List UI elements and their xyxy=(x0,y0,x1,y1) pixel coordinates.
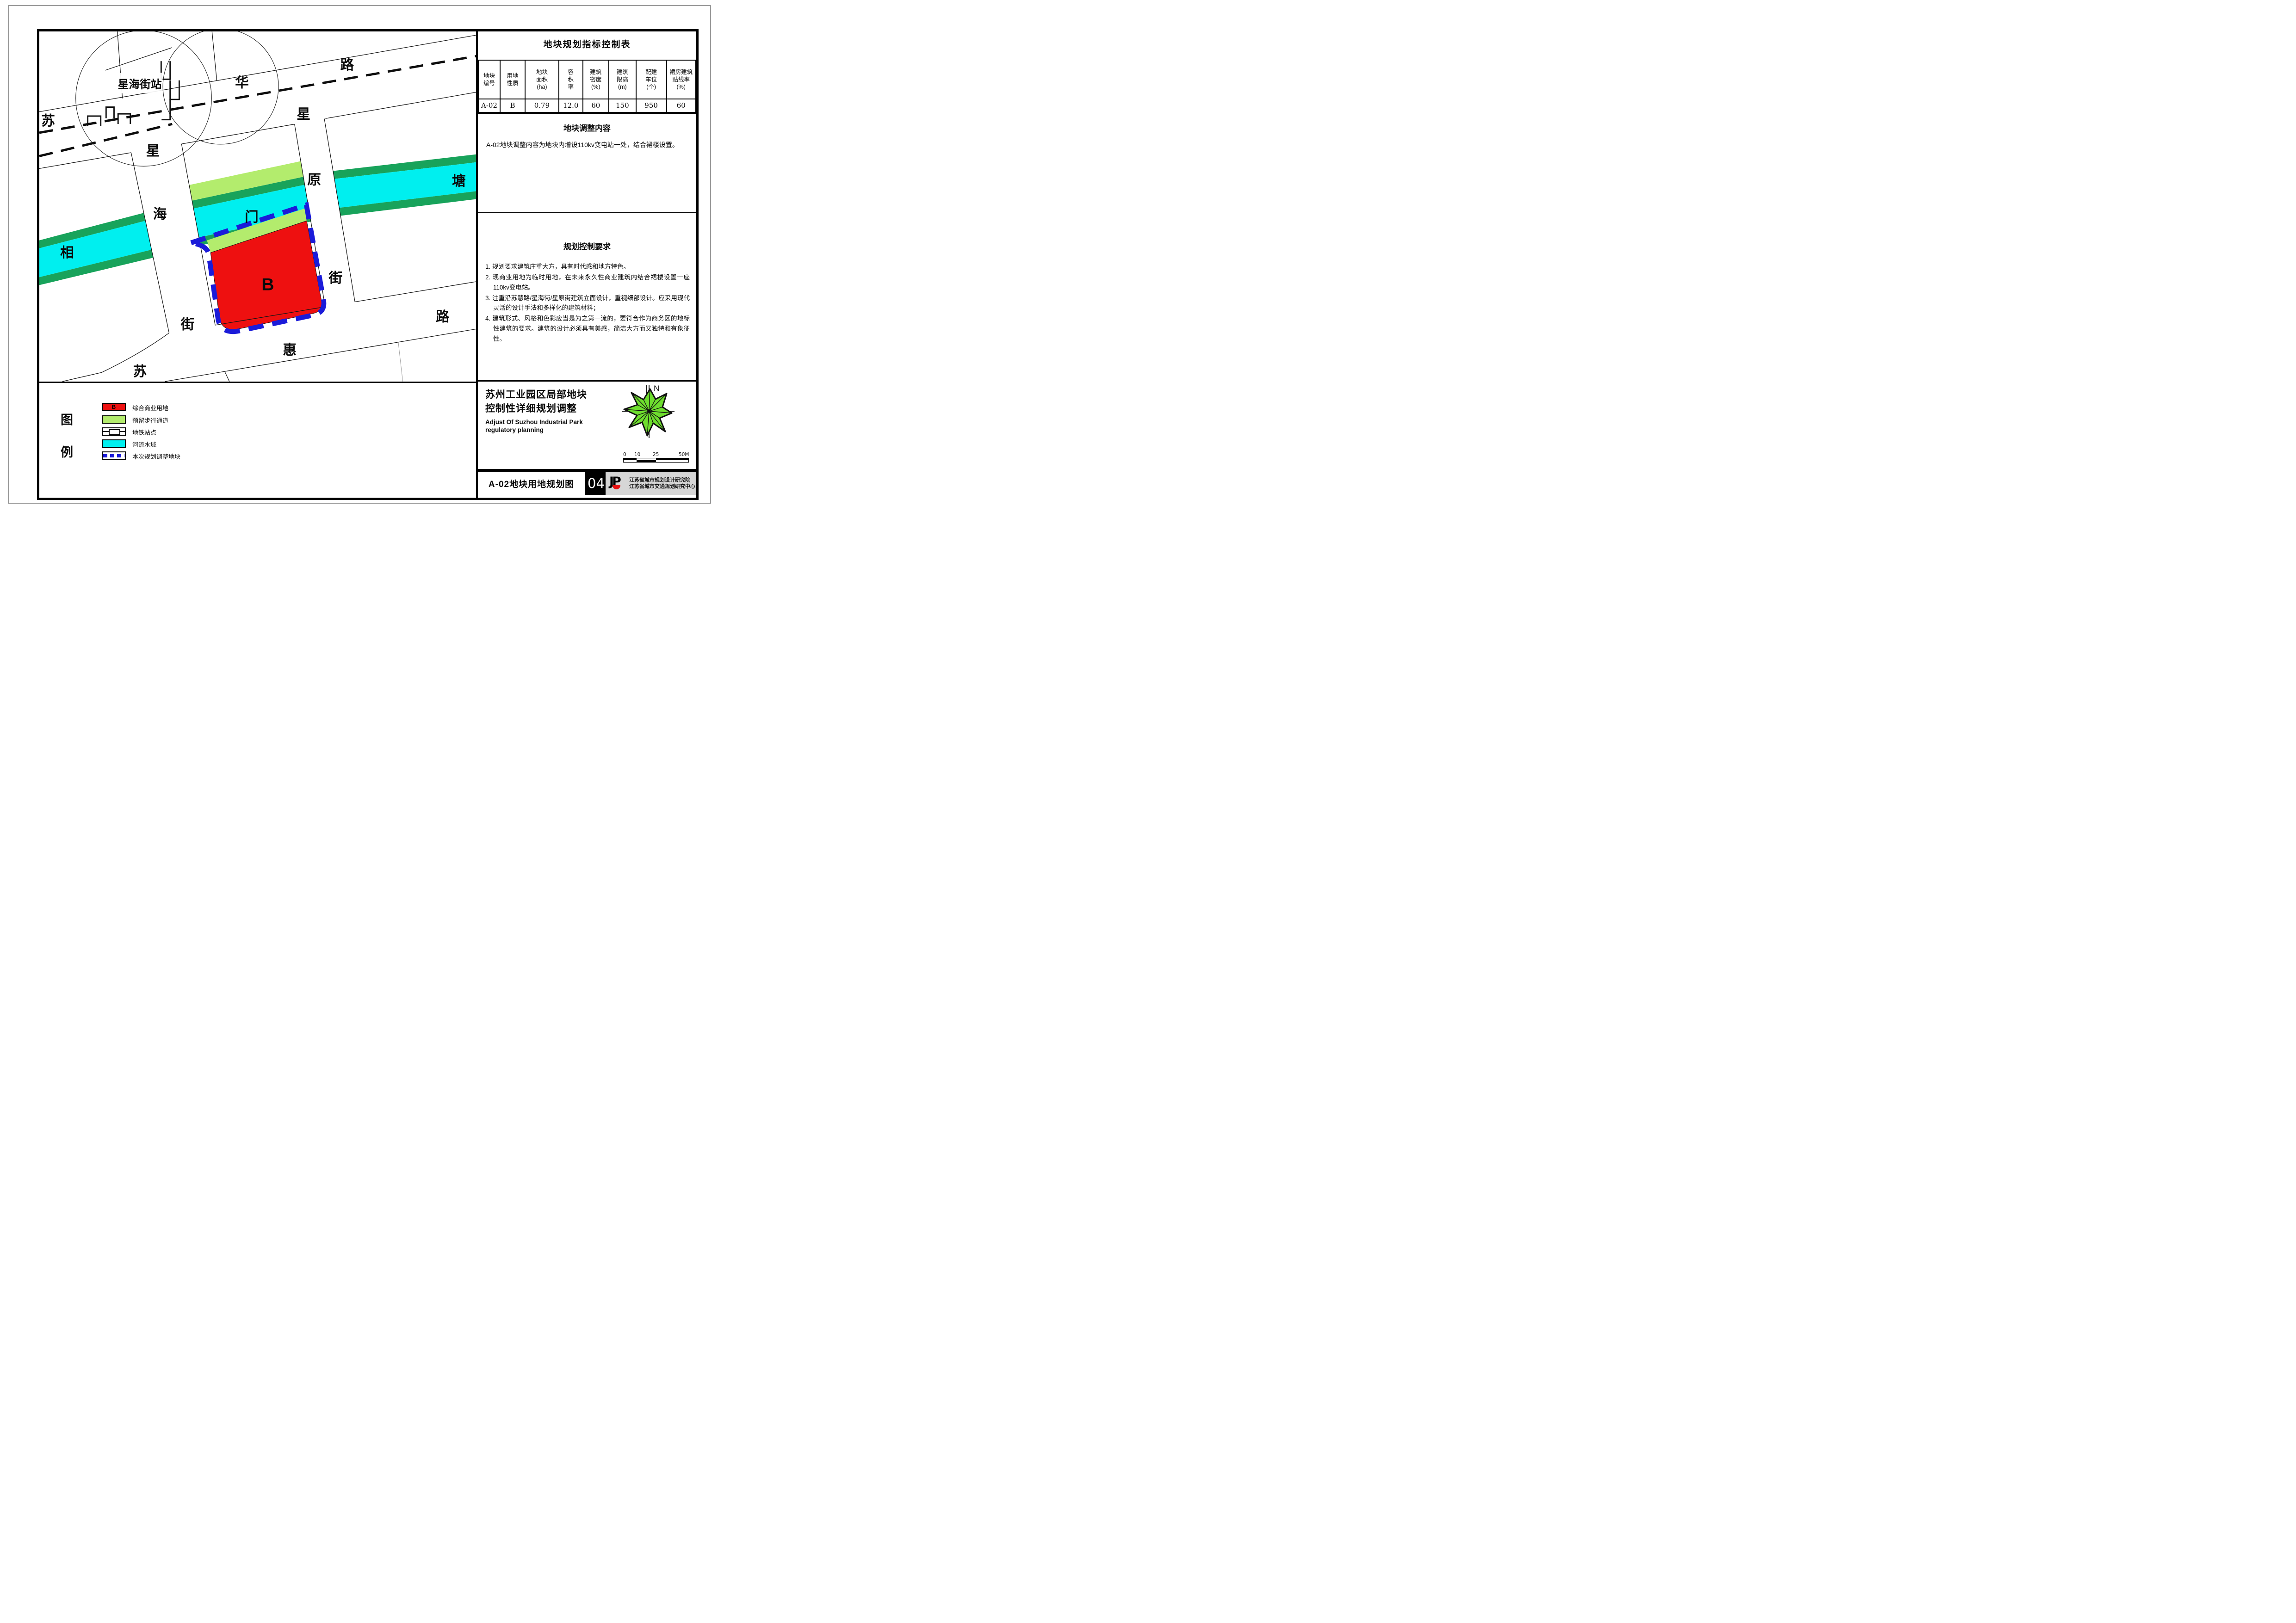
legend-swatch-adjust-boundary xyxy=(102,451,126,460)
adjustment-title: 地块调整内容 xyxy=(478,114,696,133)
legend-swatch-pedestrian xyxy=(102,415,126,424)
table-title: 地块规划指标控制表 xyxy=(478,31,696,50)
parcel-b-label: B xyxy=(261,274,274,294)
boundary-symbol-dashes xyxy=(103,454,124,457)
river-left-segment xyxy=(39,213,153,285)
col-header-parking: 配建车位(个) xyxy=(636,60,667,99)
scale-tick-10: 10 xyxy=(634,452,640,457)
sheet-number: 04 xyxy=(587,472,606,495)
drawing-title: A-02地块用地规划图 xyxy=(478,472,587,495)
north-label: N xyxy=(654,384,659,393)
cell-land-use: B xyxy=(500,99,525,112)
col-header-land-use: 用地性质 xyxy=(500,60,525,99)
scale-tick-25: 25 xyxy=(653,452,659,457)
col-header-area: 地块面积(ha) xyxy=(525,60,559,99)
river-label-xiang: 相 xyxy=(60,245,74,260)
indicator-table: 地块编号 用地性质 地块面积(ha) 容积率 建筑密度(%) 建筑限高(m) 配… xyxy=(478,60,696,113)
bottom-bar: A-02地块用地规划图 04 JP 江苏省城市规划设计研究院 江苏省城市交通规划… xyxy=(478,472,696,495)
legend-label-pedestrian: 预留步行通道 xyxy=(132,415,168,425)
control-item-2: 2. 现商业用地为临时用地，在未来永久性商业建筑内结合裙楼设置一座110kv变电… xyxy=(485,272,690,293)
site-plan-map: 星海街站 B 苏 华 路 星 海 街 星 原 街 相 门 塘 苏 惠 路 xyxy=(39,31,476,382)
road-label-lu-top: 路 xyxy=(340,57,354,73)
control-item-4: 4. 建筑形式、风格和色彩应当是为之第一流的，要符合作为商务区的地标性建筑的要求… xyxy=(485,314,690,344)
control-item-1: 1. 规划要求建筑庄重大方，具有时代感和地方特色。 xyxy=(485,262,690,272)
institute-block: JP 江苏省城市规划设计研究院 江苏省城市交通规划研究中心 xyxy=(606,472,696,495)
road-label-xinghai-hai: 海 xyxy=(153,207,167,222)
control-title: 规划控制要求 xyxy=(478,213,696,252)
station-circle-east xyxy=(163,31,278,144)
road-label-lu-bottom: 路 xyxy=(436,309,450,325)
road-label-hui: 惠 xyxy=(283,343,297,358)
col-header-far: 容积率 xyxy=(559,60,583,99)
institute-name-2: 江苏省城市交通规划研究中心 xyxy=(629,483,695,490)
cell-podium-ratio: 60 xyxy=(667,99,696,112)
col-header-plot-no: 地块编号 xyxy=(478,60,500,99)
col-header-density: 建筑密度(%) xyxy=(583,60,609,99)
planning-sheet: { "table": { "title": "地块规划指标控制表", "head… xyxy=(0,0,718,507)
scale-labels: 0 10 25 50M xyxy=(623,452,689,458)
cell-far: 12.0 xyxy=(559,99,583,112)
cell-plot-no: A-02 xyxy=(478,99,500,112)
road-name-labels: 苏 华 路 星 海 街 星 原 街 相 门 塘 苏 惠 路 xyxy=(41,57,465,379)
road-label-su-top: 苏 xyxy=(41,113,55,129)
col-header-height-limit: 建筑限高(m) xyxy=(609,60,636,99)
legend-swatch-river xyxy=(102,439,126,448)
cell-height-limit: 150 xyxy=(609,99,636,112)
legend-label-adjust-boundary: 本次规划调整地块 xyxy=(132,451,180,461)
road-label-xingyuan-yuan: 原 xyxy=(307,173,321,188)
right-panel: 地块规划指标控制表 地块编号 用地性质 地块面积(ha) 容积率 建筑密度(%)… xyxy=(476,31,696,498)
metro-symbol-box xyxy=(109,429,120,435)
title-block: 苏州工业园区局部地块 控制性详细规划调整 Adjust Of Suzhou In… xyxy=(478,382,696,472)
road-label-xinghai-jie: 街 xyxy=(180,317,195,333)
adjustment-section: 地块调整内容 A-02地块调整内容为地块内增设110kv变电站一处，结合裙楼设置… xyxy=(478,114,696,213)
river-label-tang: 塘 xyxy=(452,173,466,189)
table-header-row: 地块编号 用地性质 地块面积(ha) 容积率 建筑密度(%) 建筑限高(m) 配… xyxy=(478,60,696,99)
station-circle-west xyxy=(76,31,212,166)
station-label: 星海街站 xyxy=(118,78,162,91)
metro-line xyxy=(39,56,476,133)
scale-bar: 0 10 25 50M xyxy=(623,452,689,464)
road-label-xinghai-xing: 星 xyxy=(146,143,160,159)
table-row: A-02 B 0.79 12.0 60 150 950 60 xyxy=(478,99,696,112)
road-label-su-bottom: 苏 xyxy=(133,364,147,379)
adjustment-body: A-02地块调整内容为地块内增设110kv变电站一处，结合裙楼设置。 xyxy=(486,139,689,151)
indicator-table-section: 地块规划指标控制表 地块编号 用地性质 地块面积(ha) 容积率 建筑密度(%)… xyxy=(478,31,696,114)
legend-title-char-1: 图 xyxy=(61,410,73,428)
col-header-podium-ratio: 裙房建筑贴线率(%) xyxy=(667,60,696,99)
legend: 图 例 B 综合商业用地 预留步行通道 地铁站点 河流水域 本次规划调整地块 xyxy=(39,382,476,498)
legend-label-river: 河流水域 xyxy=(132,439,156,449)
drawing-frame: 星海街站 B 苏 华 路 星 海 街 星 原 街 相 门 塘 苏 惠 路 图 例… xyxy=(37,29,699,500)
institute-name-1: 江苏省城市规划设计研究院 xyxy=(629,477,695,483)
legend-swatch-commercial: B xyxy=(102,403,126,411)
control-requirements-section: 规划控制要求 1. 规划要求建筑庄重大方，具有时代感和地方特色。 2. 现商业用… xyxy=(478,213,696,382)
cell-parking: 950 xyxy=(636,99,667,112)
road-label-hua: 华 xyxy=(235,75,249,90)
legend-label-commercial: 综合商业用地 xyxy=(132,403,168,412)
control-items: 1. 规划要求建筑庄重大方，具有时代感和地方特色。 2. 现商业用地为临时用地，… xyxy=(485,262,690,344)
cell-density: 60 xyxy=(583,99,609,112)
control-item-3: 3. 注重沿苏慧路/星海街/星原街建筑立面设计，重视细部设计。应采用现代灵活的设… xyxy=(485,293,690,314)
cell-area: 0.79 xyxy=(525,99,559,112)
scale-bar-graphic xyxy=(623,458,689,463)
road-label-xingyuan-xing: 星 xyxy=(297,106,310,122)
river-label-men: 门 xyxy=(245,210,259,225)
scale-tick-50: 50M xyxy=(679,452,689,457)
north-rose: N xyxy=(620,383,678,441)
legend-label-metro-station: 地铁站点 xyxy=(132,427,156,437)
institute-logo: JP xyxy=(609,475,626,492)
scale-tick-0: 0 xyxy=(623,452,626,457)
road-label-xingyuan-jie: 街 xyxy=(328,271,343,286)
legend-title-char-2: 例 xyxy=(61,442,73,460)
legend-swatch-metro-station xyxy=(102,427,126,436)
